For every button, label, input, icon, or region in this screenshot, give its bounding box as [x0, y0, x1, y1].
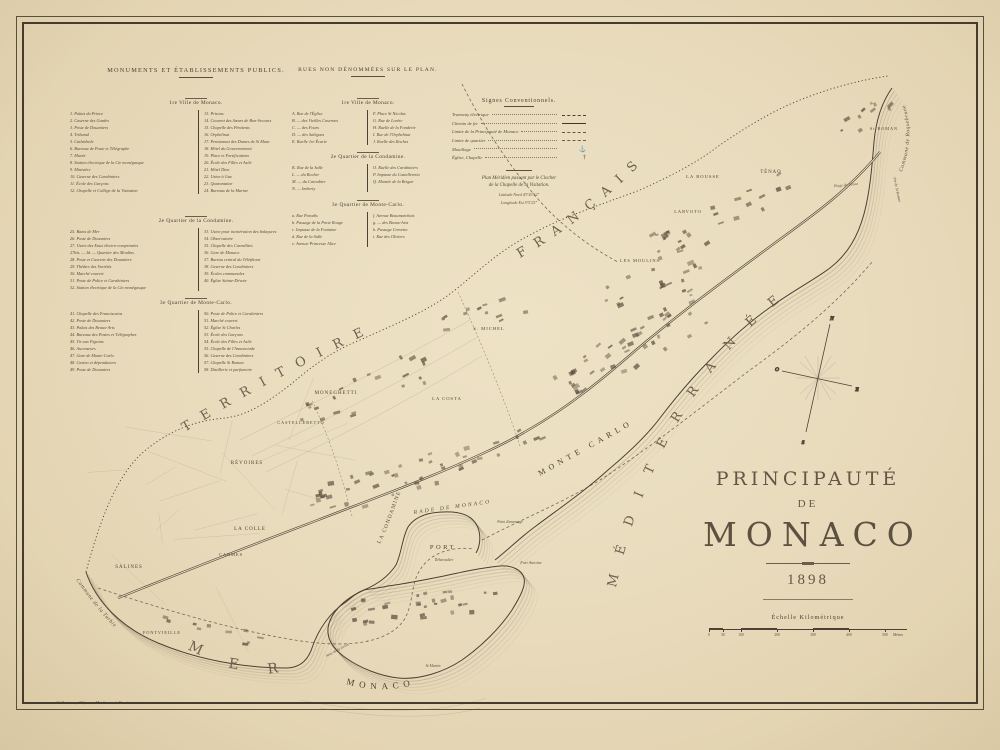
map-sheet: N S O E TERRITOIRE FRANÇAIS MÉDITERRANÉE…	[0, 0, 1000, 750]
map-frame-inner	[22, 22, 978, 704]
